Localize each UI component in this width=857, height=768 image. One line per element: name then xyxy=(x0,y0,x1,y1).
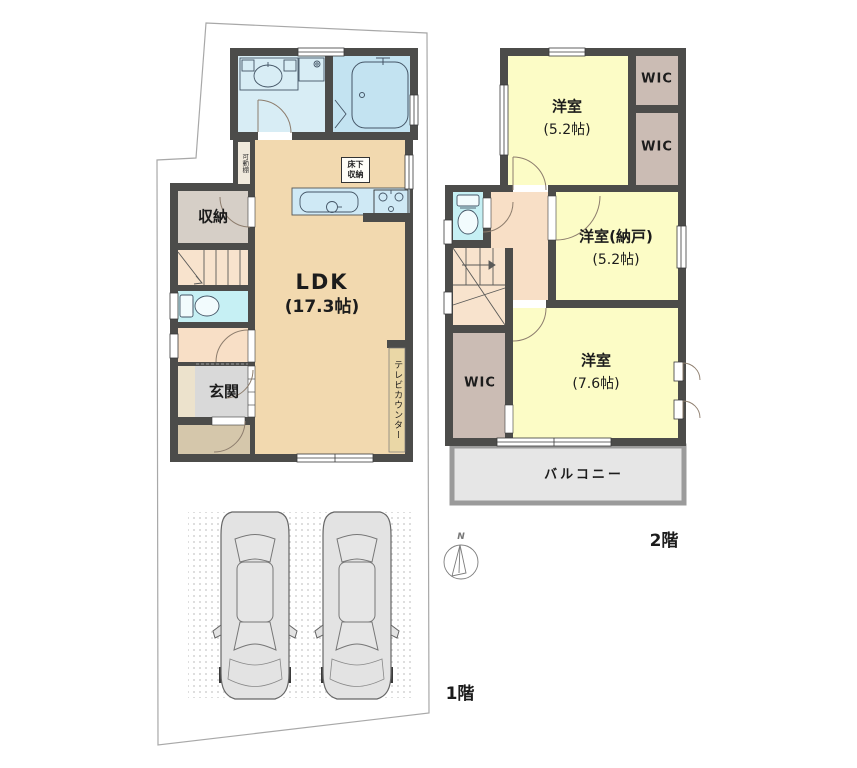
room52-floor xyxy=(508,56,628,185)
hall2-floor-a xyxy=(491,192,548,248)
room76-size-label: (7.6帖) xyxy=(572,376,619,392)
car-2 xyxy=(315,512,399,699)
entrance-label: 玄関 xyxy=(209,383,239,400)
ldk-size-label: (17.3帖) xyxy=(285,298,359,318)
hall2-floor-b xyxy=(513,248,548,300)
kitchen-counter xyxy=(292,188,410,215)
underfloor-line2: 収納 xyxy=(348,170,364,180)
floor1-plan xyxy=(170,48,418,462)
tv-counter-label: テレビカウンター xyxy=(392,360,402,440)
stairs1-floor xyxy=(178,250,248,285)
underfloor-line1: 床下 xyxy=(348,160,364,170)
bathroom-floor xyxy=(333,56,410,132)
toilet2-fixture xyxy=(457,195,479,234)
room76-label: 洋室 xyxy=(581,352,611,369)
underfloor-storage-label: 床下 収納 xyxy=(341,157,370,183)
compass-north-label: N xyxy=(457,532,465,542)
room76-floor xyxy=(513,308,678,438)
nando-label: 洋室(納戸) xyxy=(579,228,653,245)
movable-shelf-label: 可動棚 xyxy=(240,153,247,173)
shoe-cabinet xyxy=(178,366,195,417)
nando-size-label: (5.2帖) xyxy=(592,252,639,268)
compass-icon xyxy=(444,545,478,579)
nando-floor xyxy=(556,192,678,300)
ldk-label: LDK xyxy=(295,270,348,294)
room52-size-label: (5.2帖) xyxy=(543,122,590,138)
parking-area xyxy=(188,512,415,699)
floor2-title: 2階 xyxy=(650,532,679,552)
wic3-label: WIC xyxy=(464,377,496,392)
wic2-label: WIC xyxy=(641,141,673,156)
wic1-label: WIC xyxy=(641,73,673,88)
washroom-floor xyxy=(238,56,325,132)
floorplan-canvas: LDK (17.3帖) 収納 玄関 テレビカウンター 床下 収納 可動棚 1階 … xyxy=(0,0,857,768)
storage-label: 収納 xyxy=(198,208,228,225)
floor2-plan xyxy=(444,48,700,503)
car-1 xyxy=(213,512,297,699)
balcony-label: バルコニー xyxy=(544,469,624,484)
hall1-floor xyxy=(178,328,248,362)
floor1-title: 1階 xyxy=(446,685,475,705)
floorplan-drawing xyxy=(0,0,857,768)
toilet1-fixture xyxy=(180,295,219,317)
room52-label: 洋室 xyxy=(552,98,582,115)
